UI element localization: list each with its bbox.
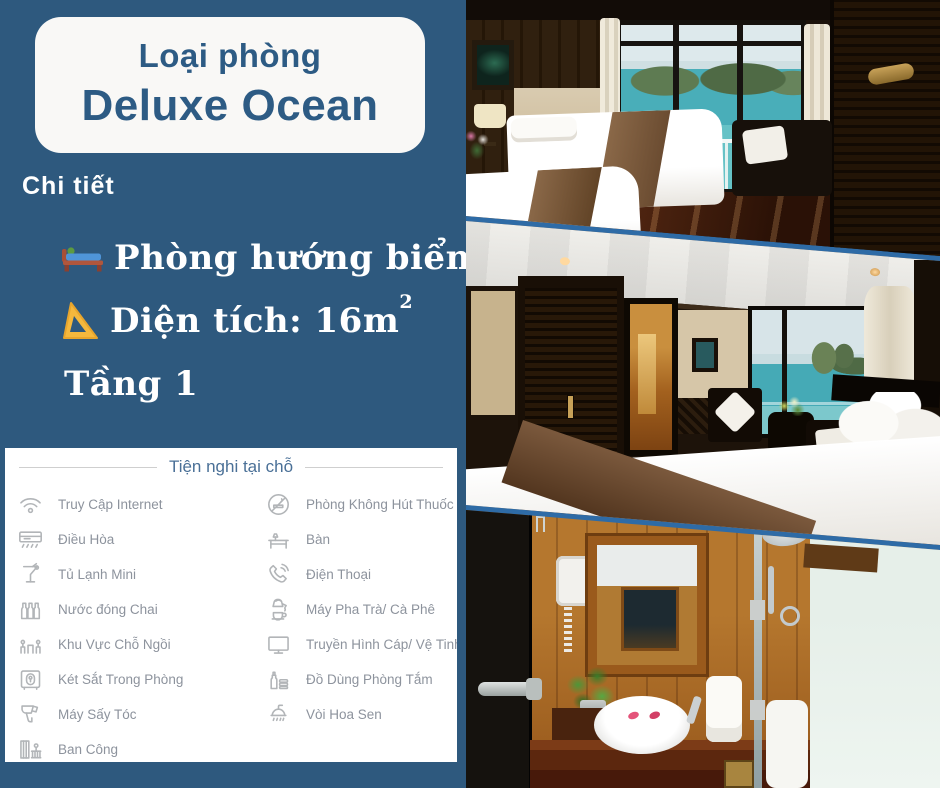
amenity-item: Đồ Dùng Phòng Tắm — [263, 662, 455, 697]
bottled-water-icon — [15, 596, 45, 624]
photo-decoration — [472, 40, 514, 90]
amenities-right-column: Phòng Không Hút Thuốc Bàn Điện Thoại Máy… — [263, 487, 455, 762]
amenity-item: Bàn — [263, 522, 455, 557]
photo-decoration — [708, 388, 762, 442]
amenity-label: Khu Vực Chỗ Ngồi — [58, 637, 171, 652]
amenity-item: Truy Cập Internet — [15, 487, 263, 522]
bed-icon — [62, 244, 104, 272]
amenity-item: Máy Pha Trà/ Cà Phê — [263, 592, 455, 627]
amenity-label: Điều Hòa — [58, 532, 114, 547]
amenity-item: Tủ Lạnh Mini — [15, 557, 263, 592]
toiletries-icon — [263, 666, 293, 694]
amenity-label: Tủ Lạnh Mini — [58, 567, 136, 582]
photo-decoration — [466, 500, 532, 788]
photo-decoration — [474, 104, 506, 128]
detail-area-value: Diện tích: 16m — [110, 301, 399, 341]
detail-floor: Tầng 1 — [64, 364, 198, 404]
in-room-safe-icon — [15, 666, 45, 694]
telephone-icon — [263, 561, 293, 589]
balcony-icon — [15, 736, 45, 763]
photo-decoration — [780, 606, 800, 626]
amenity-item: Máy Sấy Tóc — [15, 697, 263, 732]
photo-decoration — [732, 120, 832, 196]
photo-decoration — [803, 543, 878, 572]
detail-ocean-facing: Phòng hướng biển — [62, 238, 471, 278]
amenity-label: Điện Thoại — [306, 567, 371, 582]
detail-area: Diện tích: 16m2 — [60, 300, 413, 342]
photo-decoration — [624, 298, 678, 456]
wifi-icon — [15, 491, 45, 519]
air-conditioner-icon — [15, 526, 45, 554]
shower-icon — [263, 701, 293, 729]
amenity-item: Điều Hòa — [15, 522, 263, 557]
amenities-columns: Truy Cập Internet Điều Hòa Tủ Lạnh Mini … — [15, 487, 455, 762]
room-type-label: Loại phòng — [35, 37, 425, 75]
detail-area-superscript: 2 — [399, 291, 413, 313]
amenity-label: Truyền Hình Cáp/ Vệ Tinh — [306, 637, 457, 652]
seating-area-icon — [15, 631, 45, 659]
photo-decoration — [594, 696, 690, 754]
amenity-item: Vòi Hoa Sen — [263, 697, 455, 732]
photo-decoration — [588, 536, 706, 674]
amenity-item: Truyền Hình Cáp/ Vệ Tinh — [263, 627, 455, 662]
amenities-left-column: Truy Cập Internet Điều Hòa Tủ Lạnh Mini … — [15, 487, 263, 762]
amenity-label: Vòi Hoa Sen — [306, 707, 382, 722]
photo-decoration — [766, 700, 808, 788]
photo-decoration — [768, 566, 774, 614]
photo-decoration — [556, 556, 592, 606]
amenity-label: Bàn — [306, 532, 330, 547]
hairdryer-icon — [15, 701, 45, 729]
photo-decoration — [536, 516, 545, 532]
amenities-panel: Tiện nghi tại chỗ Truy Cập Internet Điều… — [5, 448, 457, 762]
tea-coffee-maker-icon — [263, 596, 293, 624]
desk-icon — [263, 526, 293, 554]
triangle-ruler-icon — [60, 300, 100, 342]
room-type-card: Loại phòng Deluxe Ocean — [35, 17, 425, 153]
photo-collage — [466, 0, 940, 788]
amenity-item: Khu Vực Chỗ Ngồi — [15, 627, 263, 662]
details-heading: Chi tiết — [22, 172, 115, 201]
photo-decoration — [462, 126, 492, 160]
amenity-item: Điện Thoại — [263, 557, 455, 592]
photo-decoration — [754, 500, 762, 788]
amenity-label: Ban Công — [58, 742, 118, 757]
detail-text: Tầng 1 — [64, 364, 198, 404]
amenities-title: Tiện nghi tại chỗ — [157, 457, 305, 477]
amenity-label: Máy Sấy Tóc — [58, 707, 137, 722]
photo-decoration — [724, 760, 754, 788]
amenity-item: Phòng Không Hút Thuốc — [263, 487, 455, 522]
photo-decoration — [478, 682, 538, 696]
amenity-item: Nước đóng Chai — [15, 592, 263, 627]
amenity-label: Phòng Không Hút Thuốc — [306, 497, 454, 512]
cable-tv-icon — [263, 631, 293, 659]
photo-decoration — [830, 0, 940, 260]
amenity-item: Ban Công — [15, 732, 263, 762]
divider-line — [305, 467, 443, 468]
room-type-name: Deluxe Ocean — [35, 81, 425, 131]
divider-line — [19, 467, 157, 468]
detail-text: Phòng hướng biển — [114, 238, 471, 278]
minibar-icon — [15, 561, 45, 589]
photo-decoration — [706, 676, 742, 742]
amenities-header: Tiện nghi tại chỗ — [19, 457, 443, 477]
detail-text: Diện tích: 16m2 — [110, 301, 413, 341]
amenity-label: Truy Cập Internet — [58, 497, 163, 512]
amenity-label: Máy Pha Trà/ Cà Phê — [306, 602, 435, 617]
photo-decoration — [466, 286, 520, 420]
amenity-item: Két Sắt Trong Phòng — [15, 662, 263, 697]
no-smoking-icon — [263, 491, 293, 519]
amenity-label: Két Sắt Trong Phòng — [58, 672, 183, 687]
amenity-label: Nước đóng Chai — [58, 602, 158, 617]
photo-decoration — [692, 338, 718, 372]
amenity-label: Đồ Dùng Phòng Tắm — [306, 672, 433, 687]
